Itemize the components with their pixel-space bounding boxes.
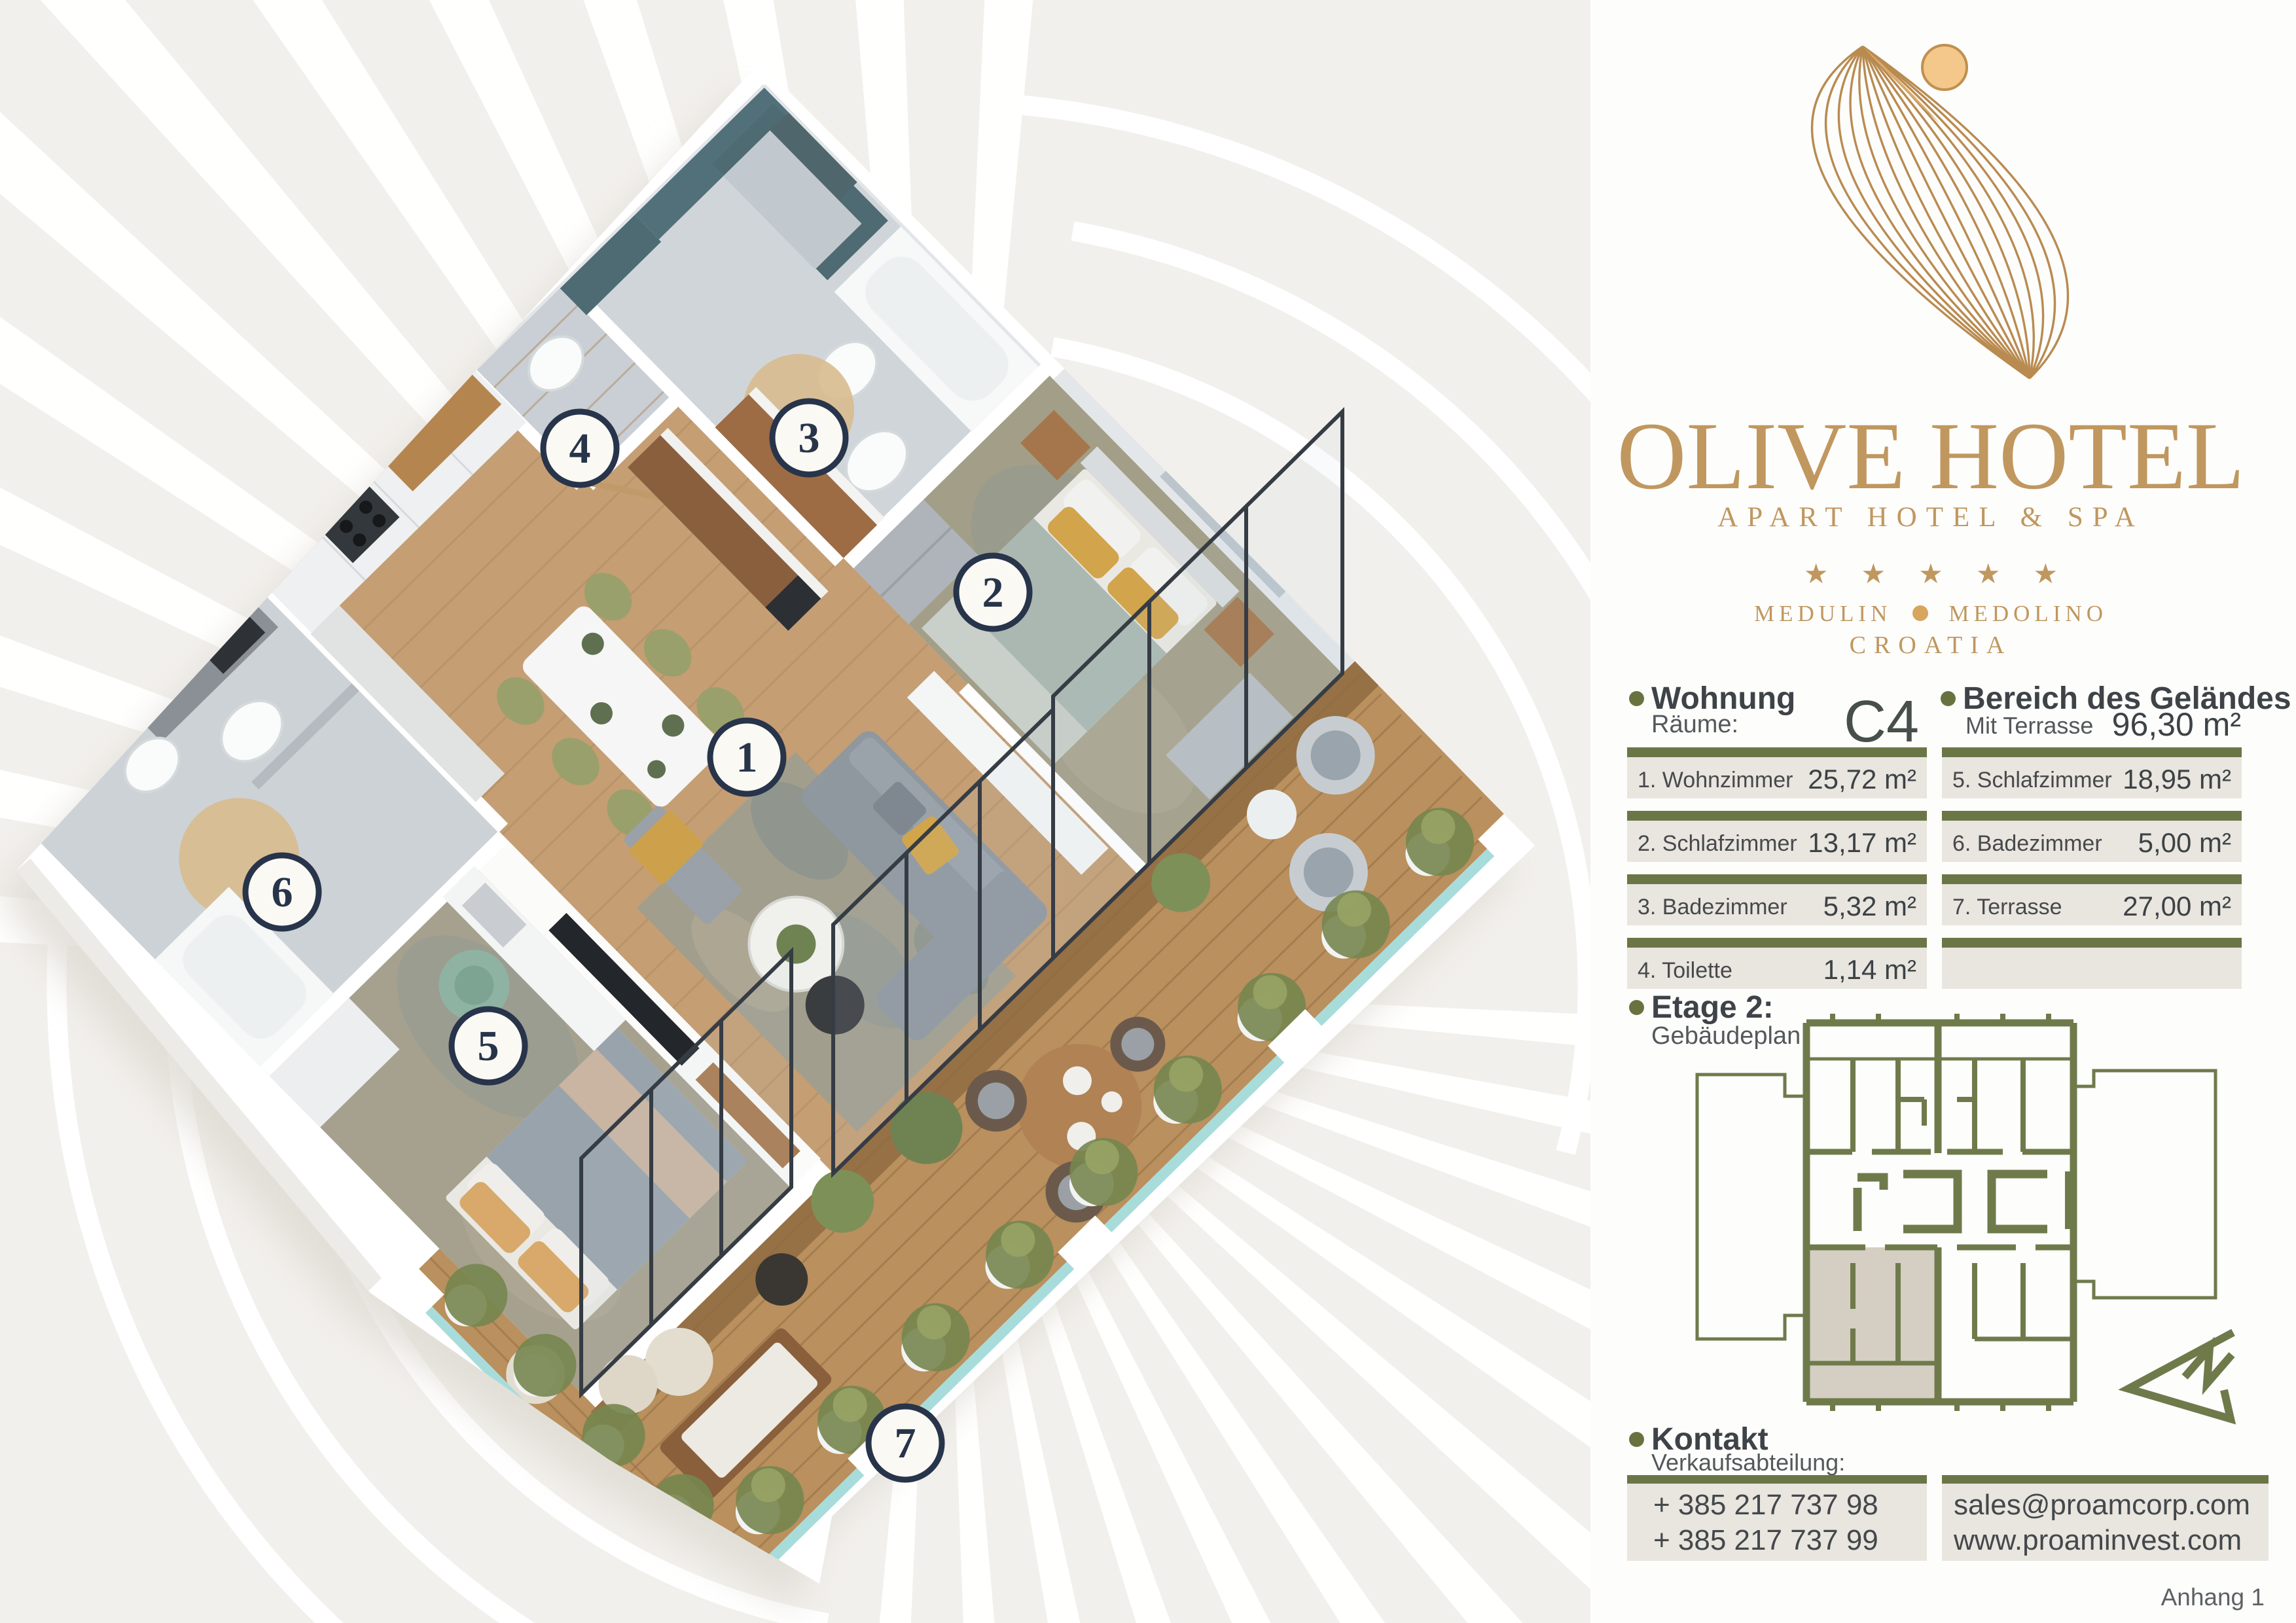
svg-text:2: 2 bbox=[982, 569, 1004, 616]
svg-text:4: 4 bbox=[569, 425, 591, 473]
svg-text:3: 3 bbox=[798, 414, 820, 462]
svg-text:6: 6 bbox=[272, 868, 293, 916]
svg-text:7: 7 bbox=[895, 1419, 916, 1467]
svg-text:1: 1 bbox=[736, 734, 758, 781]
svg-text:5: 5 bbox=[478, 1022, 499, 1070]
